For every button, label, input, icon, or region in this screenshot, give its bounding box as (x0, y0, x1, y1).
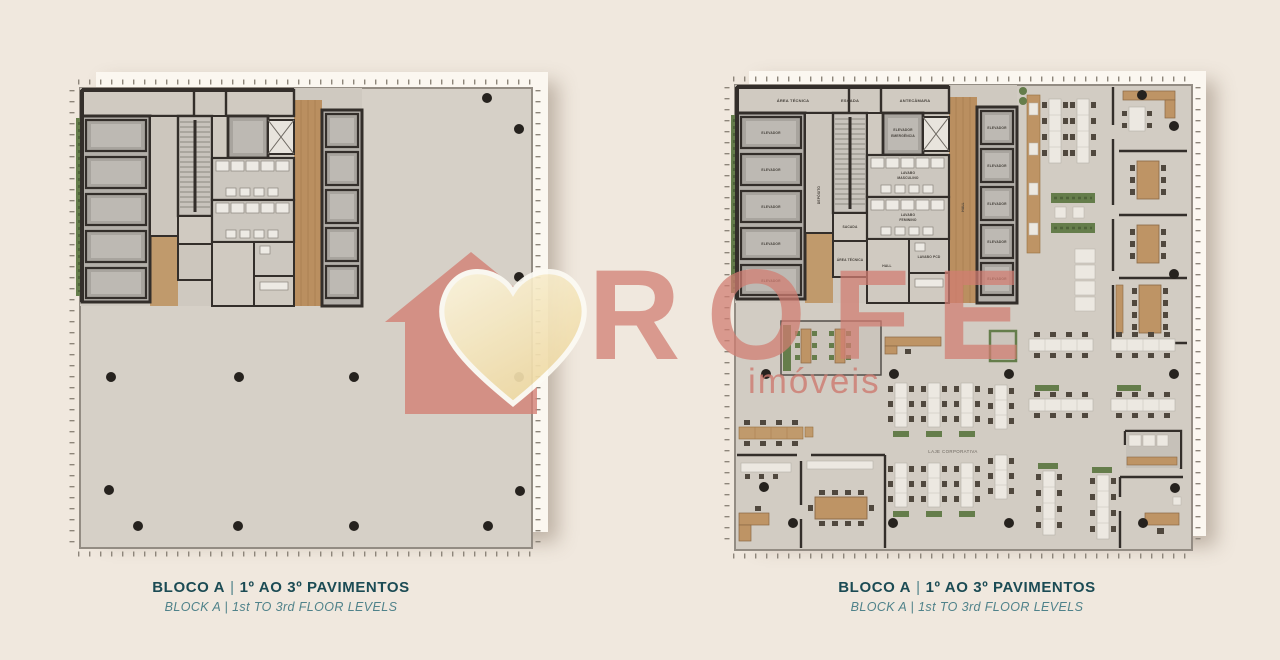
floorplan-right-furnished: ÁREA TÉCNICA ESCADA ANTECÂMARA ELEVADOR … (735, 85, 1192, 550)
caption-subtitle: BLOCK A | 1st TO 3rd FLOOR LEVELS (111, 600, 451, 614)
svg-text:ELEVADOR: ELEVADOR (761, 168, 781, 172)
svg-text:ELEVADOR: ELEVADOR (987, 277, 1007, 281)
svg-text:ELEVADOR: ELEVADOR (761, 242, 781, 246)
svg-text:ANTECÂMARA: ANTECÂMARA (900, 98, 931, 103)
svg-text:EMERGÊNCIA: EMERGÊNCIA (891, 133, 915, 138)
svg-text:ÁREA TÉCNICA: ÁREA TÉCNICA (837, 257, 864, 262)
svg-text:ELEVADOR: ELEVADOR (987, 240, 1007, 244)
svg-text:MASCULINO: MASCULINO (897, 176, 919, 180)
caption-right: BLOCO A|1º AO 3º PAVIMENTOS BLOCK A | 1s… (797, 579, 1137, 614)
caption-levels: 1º AO 3º PAVIMENTOS (926, 579, 1096, 596)
svg-text:DEPÓSITO: DEPÓSITO (816, 186, 821, 204)
pantry-copy-room (1126, 432, 1180, 468)
svg-text:LAVABO: LAVABO (901, 213, 916, 217)
svg-text:ELEVADOR: ELEVADOR (893, 128, 913, 132)
caption-separator: | (911, 579, 926, 596)
building-core (731, 85, 1017, 303)
caption-block-name: BLOCO A (152, 579, 225, 596)
svg-text:HALL: HALL (961, 202, 965, 211)
svg-text:LAVABO: LAVABO (901, 171, 916, 175)
caption-left: BLOCO A|1º AO 3º PAVIMENTOS BLOCK A | 1s… (111, 579, 451, 614)
svg-text:SACADA: SACADA (842, 225, 857, 229)
planter-box (990, 331, 1016, 361)
svg-text:HALL: HALL (882, 264, 891, 268)
svg-text:ÁREA TÉCNICA: ÁREA TÉCNICA (777, 98, 809, 103)
caption-separator: | (225, 579, 240, 596)
svg-text:ELEVADOR: ELEVADOR (987, 202, 1007, 206)
svg-text:LAJE CORPORATIVA: LAJE CORPORATIVA (928, 449, 977, 454)
svg-text:ELEVADOR: ELEVADOR (761, 279, 781, 283)
svg-text:FEMININO: FEMININO (899, 218, 917, 222)
floorplan-left-shell (80, 88, 532, 548)
counter-strip (1027, 95, 1040, 253)
caption-levels: 1º AO 3º PAVIMENTOS (240, 579, 410, 596)
svg-text:LAVABO PCD: LAVABO PCD (918, 255, 941, 259)
building-core (76, 88, 362, 306)
page-background: ÁREA TÉCNICA ESCADA ANTECÂMARA ELEVADOR … (0, 0, 1280, 660)
svg-text:ELEVADOR: ELEVADOR (761, 205, 781, 209)
svg-text:ELEVADOR: ELEVADOR (987, 164, 1007, 168)
cafe-zone (781, 321, 881, 375)
svg-text:ELEVADOR: ELEVADOR (987, 126, 1007, 130)
caption-title: BLOCO A|1º AO 3º PAVIMENTOS (797, 579, 1137, 596)
svg-text:ELEVADOR: ELEVADOR (761, 131, 781, 135)
caption-title: BLOCO A|1º AO 3º PAVIMENTOS (111, 579, 451, 596)
caption-block-name: BLOCO A (838, 579, 911, 596)
svg-text:ESCADA: ESCADA (841, 98, 859, 103)
caption-subtitle: BLOCK A | 1st TO 3rd FLOOR LEVELS (797, 600, 1137, 614)
